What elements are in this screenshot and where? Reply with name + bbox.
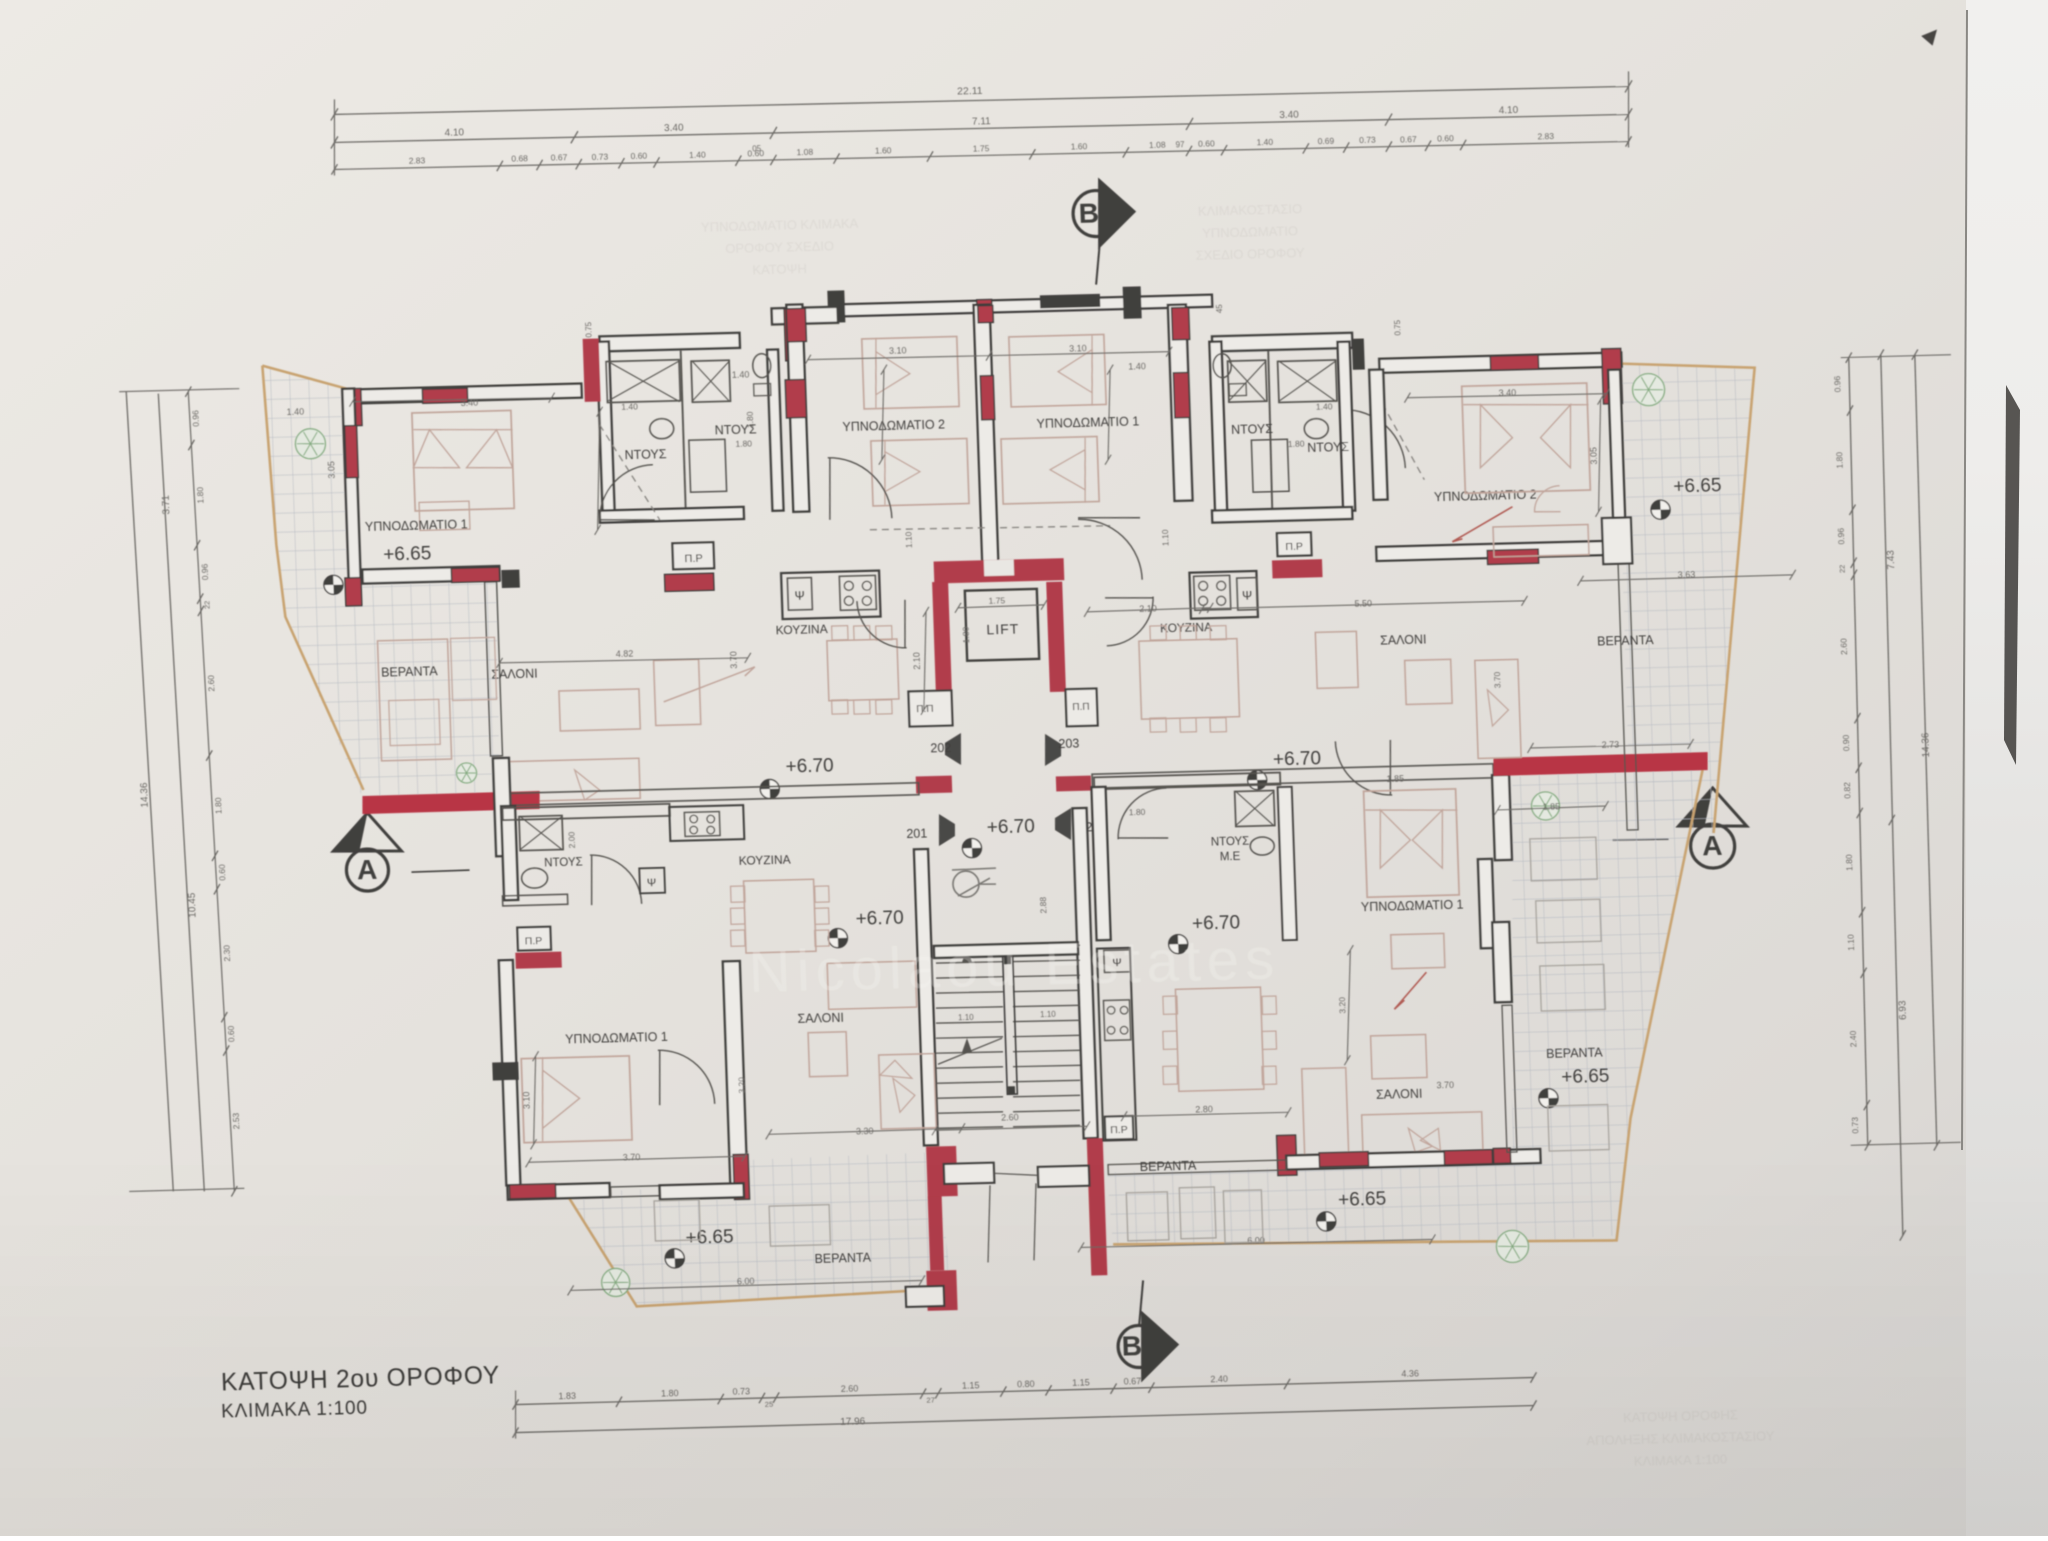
svg-text:2.00: 2.00 (566, 831, 577, 848)
svg-text:0.73: 0.73 (1850, 1117, 1861, 1134)
svg-text:0.96: 0.96 (191, 410, 202, 427)
svg-text:Nicolaou Estates: Nicolaou Estates (748, 926, 1281, 1005)
svg-text:1.80: 1.80 (1834, 452, 1845, 469)
svg-text:1.40: 1.40 (732, 369, 750, 379)
svg-text:2.60: 2.60 (206, 675, 217, 692)
svg-text:2.10: 2.10 (1139, 604, 1157, 614)
svg-text:0.60: 0.60 (1198, 138, 1215, 148)
svg-text:+6.70: +6.70 (785, 755, 834, 777)
svg-text:ΥΠΝΟΔΩΜΑΤΙΟ 2: ΥΠΝΟΔΩΜΑΤΙΟ 2 (842, 417, 945, 434)
svg-text:7.11: 7.11 (972, 116, 992, 127)
svg-text:1.40: 1.40 (1256, 137, 1273, 147)
svg-text:22.11: 22.11 (957, 85, 983, 98)
svg-text:0.82: 0.82 (1842, 782, 1853, 799)
svg-text:1.08: 1.08 (796, 147, 813, 157)
svg-text:3.40: 3.40 (664, 123, 684, 135)
svg-text:ΥΠΝΟΔΩΜΑΤΙΟ 1: ΥΠΝΟΔΩΜΑΤΙΟ 1 (1036, 414, 1139, 431)
svg-text:1.80: 1.80 (213, 797, 224, 814)
svg-text:ΣΑΛΟΝΙ: ΣΑΛΟΝΙ (797, 1011, 844, 1026)
svg-text:45: 45 (1215, 304, 1224, 314)
svg-text:ΚΟΥΖΙΝΑ: ΚΟΥΖΙΝΑ (775, 622, 827, 637)
svg-text:3.10: 3.10 (521, 1091, 532, 1109)
svg-text:2.60: 2.60 (1838, 638, 1849, 655)
svg-text:0.60: 0.60 (630, 151, 647, 161)
svg-text:1.75: 1.75 (988, 596, 1005, 606)
svg-text:ΝΤΟΥΣ: ΝΤΟΥΣ (1211, 836, 1250, 849)
svg-text:0.68: 0.68 (511, 153, 528, 163)
svg-text:0.60: 0.60 (1437, 133, 1454, 143)
svg-text:3.40: 3.40 (1498, 387, 1516, 397)
svg-text:1.10: 1.10 (1160, 529, 1171, 546)
svg-text:1.40: 1.40 (621, 401, 638, 411)
svg-text:ΝΤΟΥΣ: ΝΤΟΥΣ (624, 447, 667, 462)
svg-text:+6.65: +6.65 (1561, 1066, 1610, 1088)
svg-text:Π.Π: Π.Π (916, 704, 934, 715)
svg-text:3.70: 3.70 (1492, 671, 1503, 688)
svg-text:1.60: 1.60 (1071, 141, 1088, 151)
svg-text:2.10: 2.10 (912, 652, 923, 670)
svg-text:ΟΡΟΦΟΥ ΣΧΕΔΙΟ: ΟΡΟΦΟΥ ΣΧΕΔΙΟ (725, 238, 834, 256)
svg-text:1.10: 1.10 (958, 1013, 974, 1022)
svg-text:ΥΠΝΟΔΩΜΑΤΙΟ 2: ΥΠΝΟΔΩΜΑΤΙΟ 2 (1434, 487, 1537, 504)
svg-text:4.82: 4.82 (616, 649, 634, 659)
svg-text:0.73: 0.73 (591, 151, 608, 161)
svg-text:0.73: 0.73 (1359, 135, 1376, 145)
svg-text:ΚΛΙΜΑΚΟΣΤΑΣΙΟ: ΚΛΙΜΑΚΟΣΤΑΣΙΟ (1198, 201, 1303, 219)
svg-text:Π.Ρ: Π.Ρ (1285, 541, 1303, 553)
svg-text:97: 97 (1175, 140, 1185, 149)
svg-text:3.05: 3.05 (1588, 447, 1599, 465)
svg-text:2.80: 2.80 (1195, 1104, 1213, 1114)
svg-text:B: B (1078, 197, 1099, 229)
svg-text:3.10: 3.10 (889, 345, 907, 355)
svg-text:14.36: 14.36 (139, 782, 151, 808)
svg-text:Π.Ρ: Π.Ρ (525, 935, 543, 947)
svg-text:ΥΠΝΟΔΩΜΑΤΙΟ 1: ΥΠΝΟΔΩΜΑΤΙΟ 1 (365, 517, 468, 534)
svg-text:ΝΤΟΥΣ: ΝΤΟΥΣ (544, 857, 583, 870)
svg-text:Μ.Ε: Μ.Ε (1220, 851, 1241, 864)
svg-text:14.36: 14.36 (1920, 732, 1932, 758)
svg-text:3.20: 3.20 (1337, 997, 1348, 1014)
svg-text:ΝΤΟΥΣ: ΝΤΟΥΣ (1307, 440, 1350, 455)
svg-text:1.75: 1.75 (973, 143, 990, 153)
svg-text:2.40: 2.40 (1848, 1030, 1859, 1047)
svg-text:0.90: 0.90 (1841, 734, 1852, 751)
svg-text:7.43: 7.43 (1885, 550, 1897, 570)
svg-text:ΒΕΡΑΝΤΑ: ΒΕΡΑΝΤΑ (1597, 633, 1655, 648)
svg-text:0.75: 0.75 (1393, 319, 1403, 335)
svg-text:Ψ: Ψ (1242, 589, 1253, 603)
svg-text:+6.70: +6.70 (1273, 748, 1322, 770)
svg-text:1.10: 1.10 (904, 531, 915, 548)
svg-text:1.40: 1.40 (1316, 401, 1333, 411)
svg-text:ΣΑΛΟΝΙ: ΣΑΛΟΝΙ (491, 666, 538, 681)
svg-text:3.70: 3.70 (1436, 1080, 1454, 1090)
svg-text:3.20: 3.20 (736, 1077, 747, 1094)
svg-text:ΣΑΛΟΝΙ: ΣΑΛΟΝΙ (1376, 1087, 1423, 1102)
svg-text:0.67: 0.67 (1400, 134, 1417, 144)
svg-text:ΚΟΥΖΙΝΑ: ΚΟΥΖΙΝΑ (1160, 620, 1212, 635)
svg-text:2.53: 2.53 (231, 1112, 242, 1129)
svg-text:ΝΤΟΥΣ: ΝΤΟΥΣ (1231, 422, 1274, 437)
svg-text:Ψ: Ψ (647, 877, 657, 889)
svg-text:10.45: 10.45 (187, 892, 199, 918)
svg-text:1.85: 1.85 (1542, 802, 1560, 812)
svg-text:ΒΕΡΑΝΤΑ: ΒΕΡΑΝΤΑ (381, 664, 439, 679)
svg-text:4.10: 4.10 (444, 128, 464, 140)
svg-text:3.40: 3.40 (1279, 109, 1299, 121)
svg-text:+6.65: +6.65 (383, 543, 432, 565)
svg-text:1.80: 1.80 (1288, 439, 1305, 449)
svg-text:203: 203 (1058, 737, 1079, 752)
svg-text:1.40: 1.40 (1128, 361, 1146, 371)
svg-text:1.80: 1.80 (961, 626, 972, 643)
svg-text:1.80: 1.80 (1129, 807, 1146, 817)
svg-text:1.40: 1.40 (689, 149, 706, 159)
svg-text:1.80: 1.80 (735, 438, 752, 448)
svg-text:1.08: 1.08 (1149, 139, 1166, 149)
svg-text:ΣΑΛΟΝΙ: ΣΑΛΟΝΙ (1380, 632, 1427, 647)
svg-text:ΥΠΝΟΔΩΜΑΤΙΟ 1: ΥΠΝΟΔΩΜΑΤΙΟ 1 (1361, 898, 1464, 915)
svg-text:1.80: 1.80 (1844, 854, 1855, 871)
svg-text:A: A (356, 854, 377, 886)
svg-text:2.83: 2.83 (409, 155, 426, 165)
svg-text:2.88: 2.88 (1038, 897, 1049, 914)
svg-text:2.30: 2.30 (221, 945, 232, 962)
svg-text:2.73: 2.73 (1601, 740, 1619, 750)
svg-text:6.93: 6.93 (1897, 1000, 1909, 1020)
svg-text:05: 05 (752, 144, 762, 153)
svg-text:ΥΠΝΟΔΩΜΑΤΙΟ: ΥΠΝΟΔΩΜΑΤΙΟ (1202, 223, 1298, 240)
svg-text:0.75: 0.75 (584, 321, 594, 337)
svg-text:LIFT: LIFT (986, 620, 1019, 637)
svg-text:Π.Π: Π.Π (1072, 702, 1090, 713)
svg-text:4.10: 4.10 (1499, 105, 1519, 117)
svg-text:0.69: 0.69 (1317, 136, 1334, 146)
svg-text:1.10: 1.10 (1846, 934, 1857, 951)
svg-text:1.85: 1.85 (1386, 774, 1404, 784)
svg-text:202: 202 (930, 741, 951, 756)
svg-text:0.96: 0.96 (199, 563, 210, 580)
svg-text:2.83: 2.83 (1537, 131, 1554, 141)
svg-text:0.60: 0.60 (226, 1025, 237, 1042)
svg-text:+6.70: +6.70 (855, 908, 904, 930)
svg-text:ΒΕΡΑΝΤΑ: ΒΕΡΑΝΤΑ (1546, 1045, 1604, 1060)
svg-text:ΣΧΕΔΙΟ ΟΡΟΦΟΥ: ΣΧΕΔΙΟ ΟΡΟΦΟΥ (1195, 245, 1305, 263)
svg-text:0.60: 0.60 (217, 864, 228, 881)
svg-text:Π.Ρ: Π.Ρ (1110, 1124, 1128, 1136)
svg-text:1.80: 1.80 (195, 487, 206, 504)
svg-text:1.60: 1.60 (875, 145, 892, 155)
svg-text:22: 22 (1838, 565, 1847, 574)
svg-text:+6.70: +6.70 (986, 816, 1035, 838)
svg-text:3.10: 3.10 (1069, 343, 1087, 353)
svg-text:1.10: 1.10 (1040, 1010, 1056, 1019)
svg-text:5.50: 5.50 (1354, 599, 1372, 609)
svg-text:ΚΑΤΟΨΗ: ΚΑΤΟΨΗ (752, 261, 807, 277)
svg-text:0.96: 0.96 (1832, 375, 1843, 392)
svg-text:22: 22 (202, 601, 211, 610)
svg-text:2.60: 2.60 (1001, 1112, 1019, 1122)
svg-text:1.40: 1.40 (286, 406, 304, 416)
svg-text:Π.Ρ: Π.Ρ (684, 553, 703, 565)
svg-text:3.70: 3.70 (728, 651, 739, 669)
svg-text:3.71: 3.71 (161, 495, 173, 515)
svg-text:3.05: 3.05 (326, 461, 337, 479)
svg-text:ΚΟΥΖΙΝΑ: ΚΟΥΖΙΝΑ (738, 852, 790, 867)
svg-text:1.80: 1.80 (744, 411, 755, 428)
svg-text:201: 201 (906, 827, 927, 842)
svg-text:0.96: 0.96 (1836, 528, 1847, 545)
svg-text:+6.65: +6.65 (1673, 475, 1722, 497)
svg-text:0.67: 0.67 (551, 152, 568, 162)
svg-text:ΥΠΝΟΔΩΜΑΤΙΟ 1: ΥΠΝΟΔΩΜΑΤΙΟ 1 (565, 1030, 668, 1047)
svg-text:A: A (1702, 830, 1723, 862)
svg-text:Ψ: Ψ (794, 589, 805, 603)
